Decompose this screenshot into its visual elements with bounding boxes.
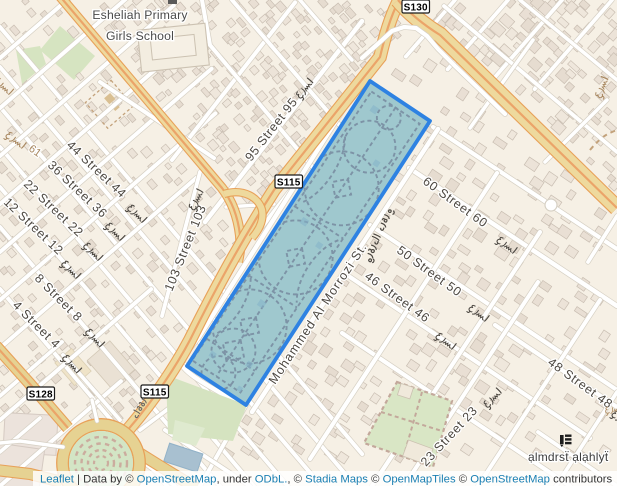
svg-text:Leaflet | Data by © OpenStreet: Leaflet | Data by © OpenStreetMap, under… [40,474,612,486]
svg-text:S128: S128 [29,389,53,400]
svg-text:S115: S115 [143,387,167,398]
svg-text:ạlmdrsẗ ạlạhlyẗ: ạlmdrsẗ ạlạhlyẗ [528,450,609,464]
svg-text:S130: S130 [404,2,428,13]
svg-text:Esheliah Primary: Esheliah Primary [92,8,188,22]
svg-text:Girls School: Girls School [106,29,174,43]
svg-text:S115: S115 [277,177,301,188]
